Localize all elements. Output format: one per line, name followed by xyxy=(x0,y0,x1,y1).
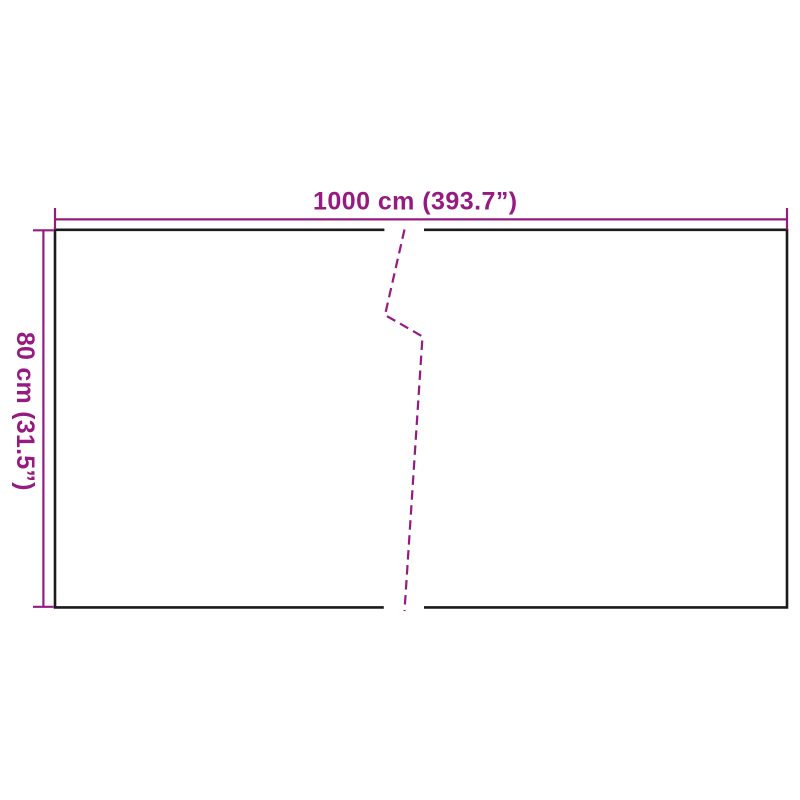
svg-text:80 cm (31.5”): 80 cm (31.5”) xyxy=(11,332,39,491)
svg-text:1000 cm (393.7”): 1000 cm (393.7”) xyxy=(313,188,518,216)
